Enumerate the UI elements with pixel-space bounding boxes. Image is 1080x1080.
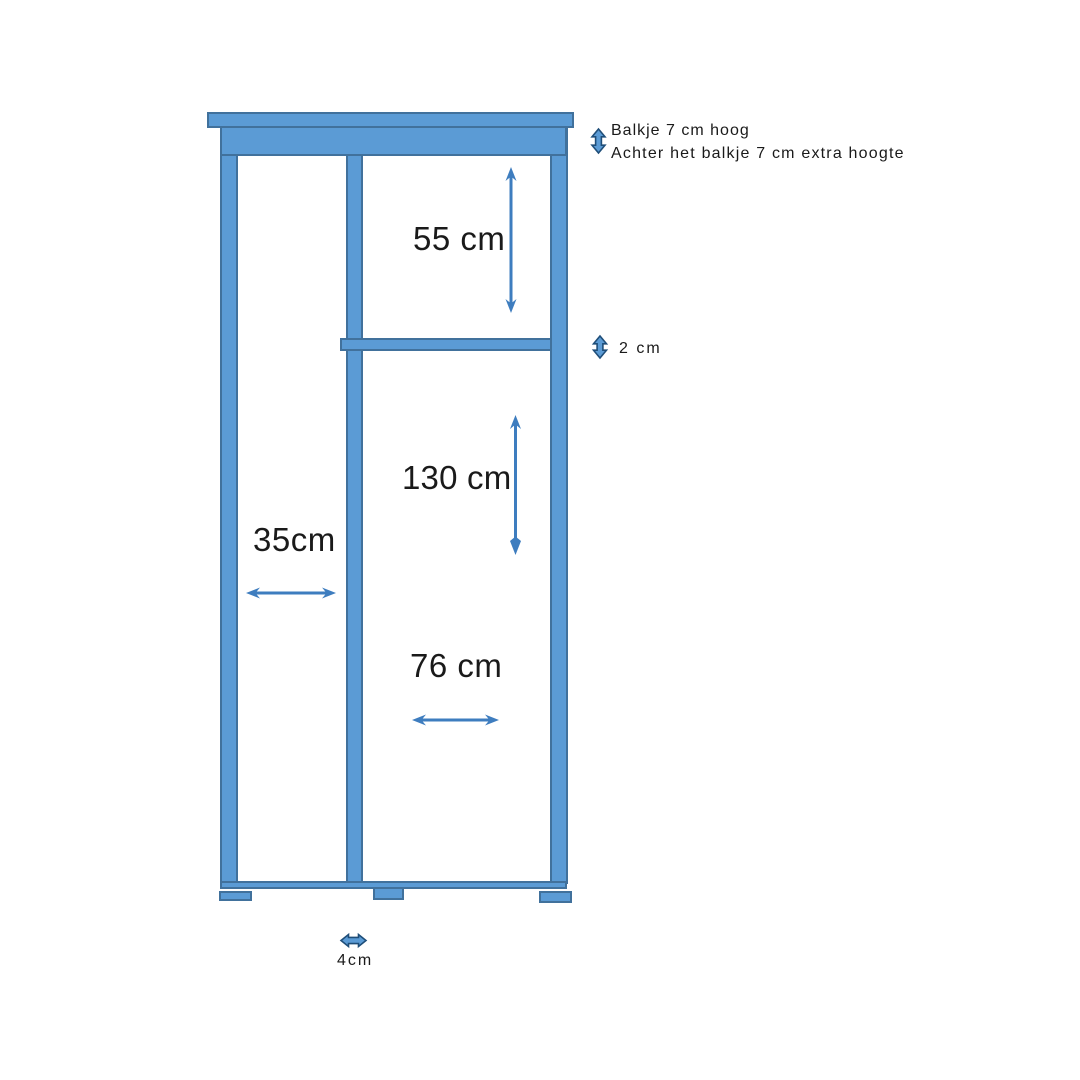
svg-text:55 cm: 55 cm xyxy=(413,220,505,257)
svg-text:Balkje 7 cm hoog: Balkje 7 cm hoog xyxy=(611,122,750,139)
svg-text:4cm: 4cm xyxy=(337,952,373,969)
svg-text:2 cm: 2 cm xyxy=(619,340,662,357)
svg-text:Achter het balkje 7 cm extra h: Achter het balkje 7 cm extra hoogte xyxy=(611,145,905,162)
svg-text:35cm: 35cm xyxy=(253,521,336,558)
svg-text:76 cm: 76 cm xyxy=(410,647,502,684)
svg-text:130 cm: 130 cm xyxy=(402,459,511,496)
